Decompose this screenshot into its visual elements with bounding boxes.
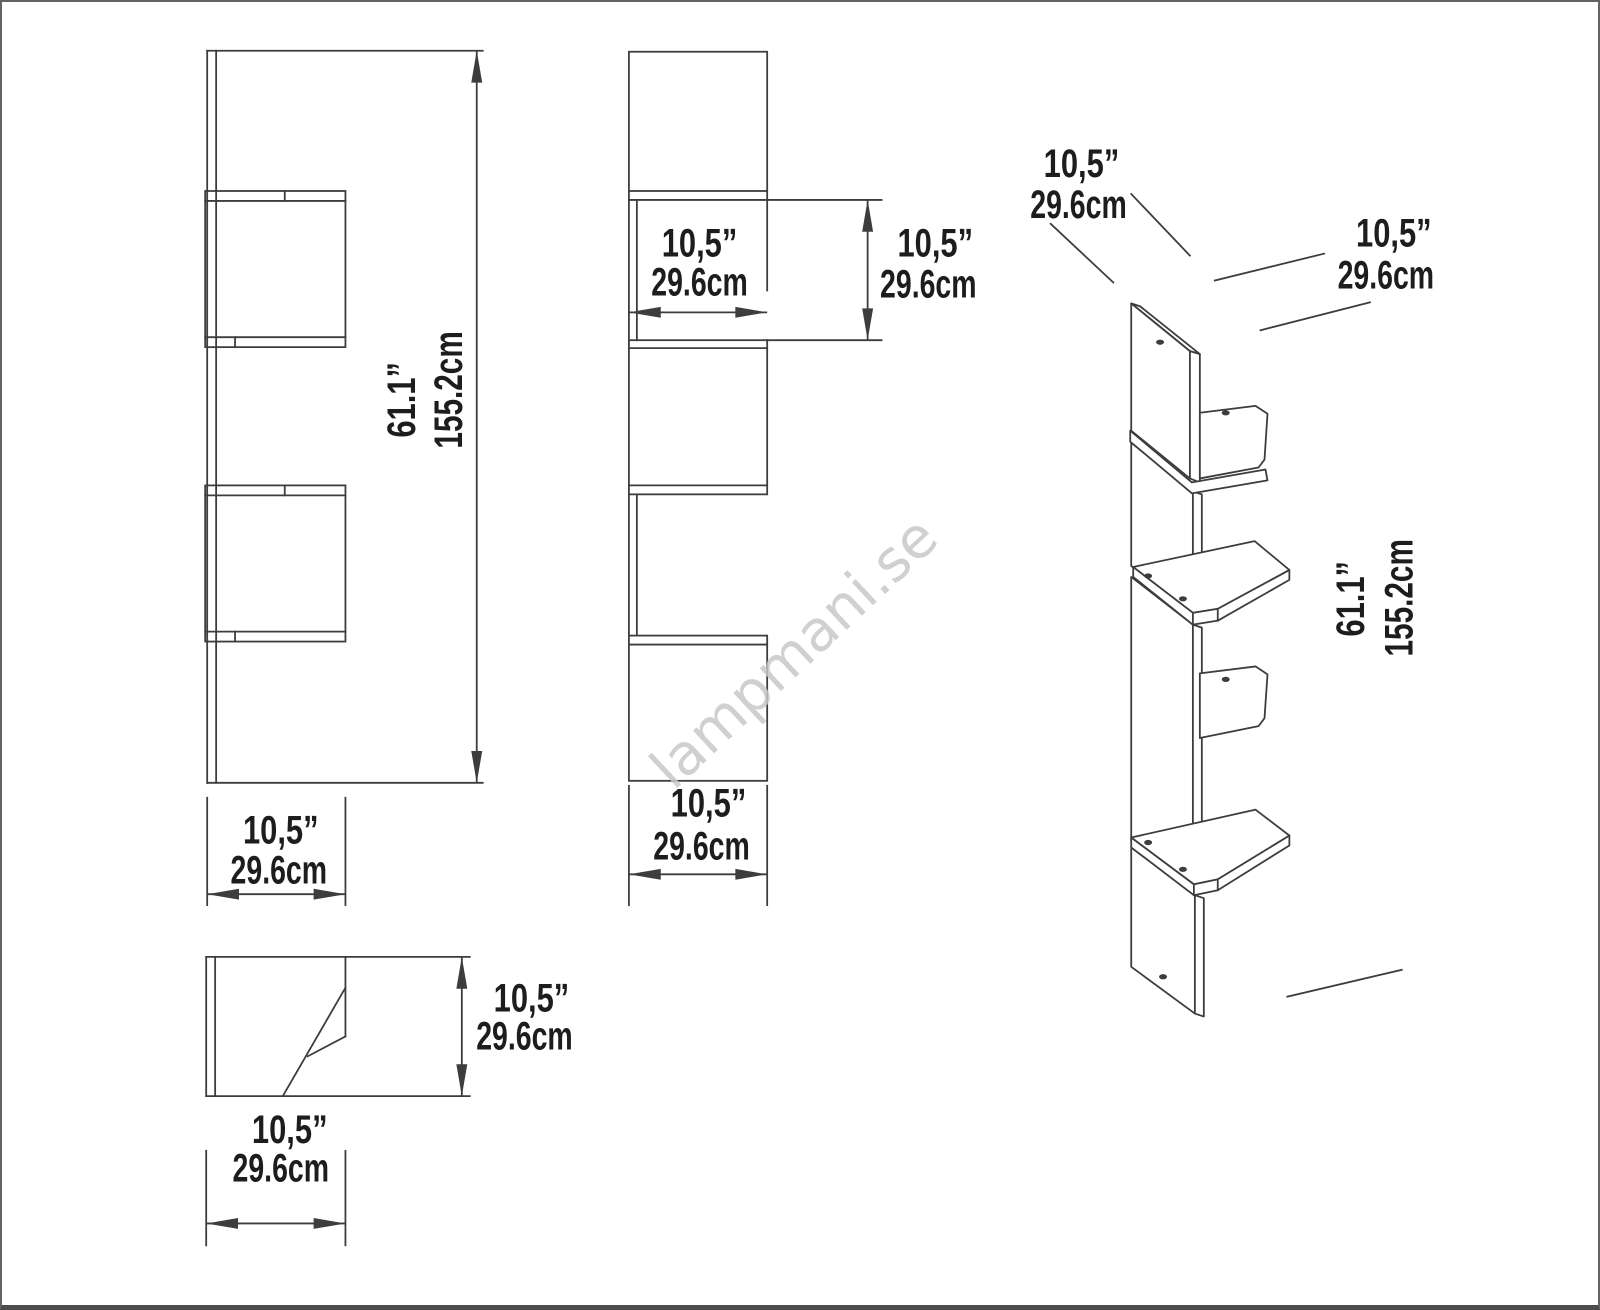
side-inner-width-label-cm: 29.6cm bbox=[651, 260, 747, 304]
front-view-width-dimension: 10,5” 29.6cm bbox=[207, 798, 345, 905]
wing-2 bbox=[1200, 666, 1268, 738]
front-width-label-cm: 29.6cm bbox=[231, 848, 327, 892]
top-view-outline bbox=[206, 957, 470, 1096]
top-view-depth-dimension: 10,5” 29.6cm bbox=[462, 957, 573, 1096]
side-width-label-cm: 29.6cm bbox=[653, 824, 749, 868]
side-inner-width-label-in: 10,5” bbox=[662, 222, 738, 266]
technical-drawing: 61.1” 155.2cm 10,5” 29.6cm bbox=[2, 2, 1598, 1305]
drawing-sheet: 61.1” 155.2cm 10,5” 29.6cm bbox=[0, 0, 1600, 1310]
perspective-view: 10,5” 29.6cm 10,5” 29.6cm 61.1” 155.2cm bbox=[1030, 142, 1434, 1016]
top-view: 10,5” 29.6cm 10,5” 29.6cm bbox=[206, 957, 573, 1245]
top-view-width-dimension: 10,5” 29.6cm bbox=[206, 1108, 345, 1245]
panel-4-side bbox=[1195, 895, 1204, 1016]
watermark: lampmani.se bbox=[638, 504, 951, 802]
top-width-label-in: 10,5” bbox=[252, 1108, 328, 1152]
persp-depth-label-in: 10,5” bbox=[1044, 142, 1120, 186]
persp-depth-label-cm: 29.6cm bbox=[1030, 183, 1126, 227]
front-view-height-dimension: 61.1” 155.2cm bbox=[380, 51, 477, 783]
front-width-label-in: 10,5” bbox=[243, 808, 319, 852]
side-section-height-label-cm: 29.6cm bbox=[880, 262, 976, 306]
side-section-height-label-in: 10,5” bbox=[897, 222, 973, 266]
persp-height-label-in: 61.1” bbox=[1329, 561, 1373, 637]
top-depth-label-cm: 29.6cm bbox=[476, 1014, 572, 1058]
front-height-label-in: 61.1” bbox=[380, 362, 424, 438]
persp-height-label-cm: 155.2cm bbox=[1378, 539, 1422, 656]
panel-1-side bbox=[1190, 351, 1200, 482]
side-view-inner-width-dimension: 10,5” 29.6cm bbox=[629, 222, 767, 313]
side-view-section-height-dimension: 10,5” 29.6cm bbox=[868, 200, 977, 340]
persp-width-label-in: 10,5” bbox=[1356, 212, 1432, 256]
persp-width-label-cm: 29.6cm bbox=[1338, 253, 1434, 297]
front-height-label-cm: 155.2cm bbox=[427, 331, 471, 448]
side-view-width-dimension: 10,5” 29.6cm bbox=[629, 782, 767, 906]
panel-2-side bbox=[1193, 491, 1202, 559]
wing-1 bbox=[1200, 406, 1268, 479]
front-view: 61.1” 155.2cm 10,5” 29.6cm bbox=[205, 51, 483, 905]
top-width-label-cm: 29.6cm bbox=[233, 1147, 329, 1191]
